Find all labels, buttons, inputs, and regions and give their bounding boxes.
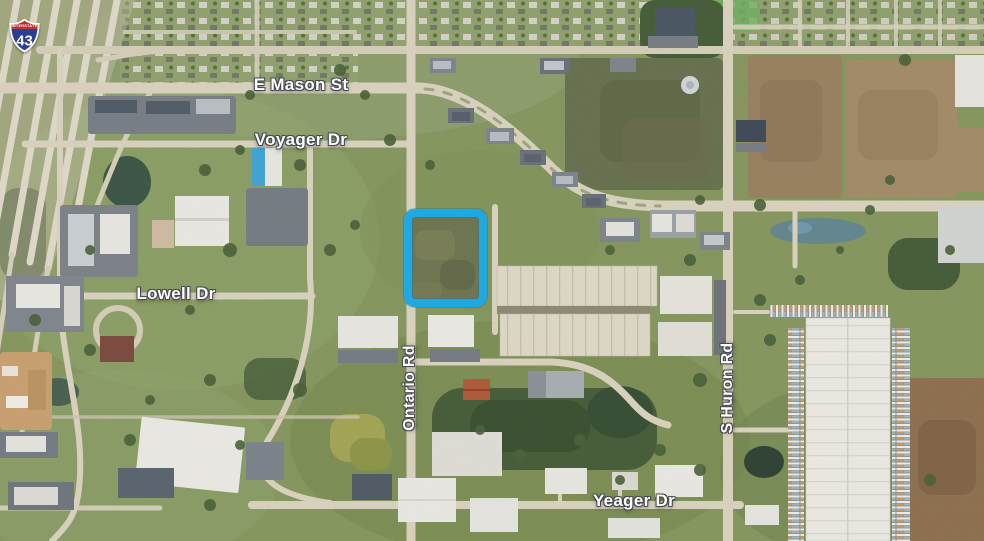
street-label-ontario-rd: Ontario Rd (401, 345, 419, 431)
interstate-43-shield: INTERSTATE 43 (8, 17, 41, 54)
satellite-imagery (0, 0, 984, 541)
photo-grain (0, 0, 984, 541)
street-label-voyager-dr: Voyager Dr (255, 130, 347, 150)
street-label-lowell-dr: Lowell Dr (136, 284, 215, 304)
street-label-e-mason-st: E Mason St (254, 75, 349, 95)
shield-band-text: INTERSTATE (12, 24, 38, 28)
street-label-s-huron-rd: S Huron Rd (719, 343, 737, 434)
parcel-highlight[interactable] (404, 209, 487, 307)
street-label-yeager-dr: Yeager Dr (593, 491, 675, 511)
shield-number-text: 43 (16, 33, 33, 49)
satellite-map[interactable]: E Mason St Voyager Dr Lowell Dr Ontario … (0, 0, 984, 541)
